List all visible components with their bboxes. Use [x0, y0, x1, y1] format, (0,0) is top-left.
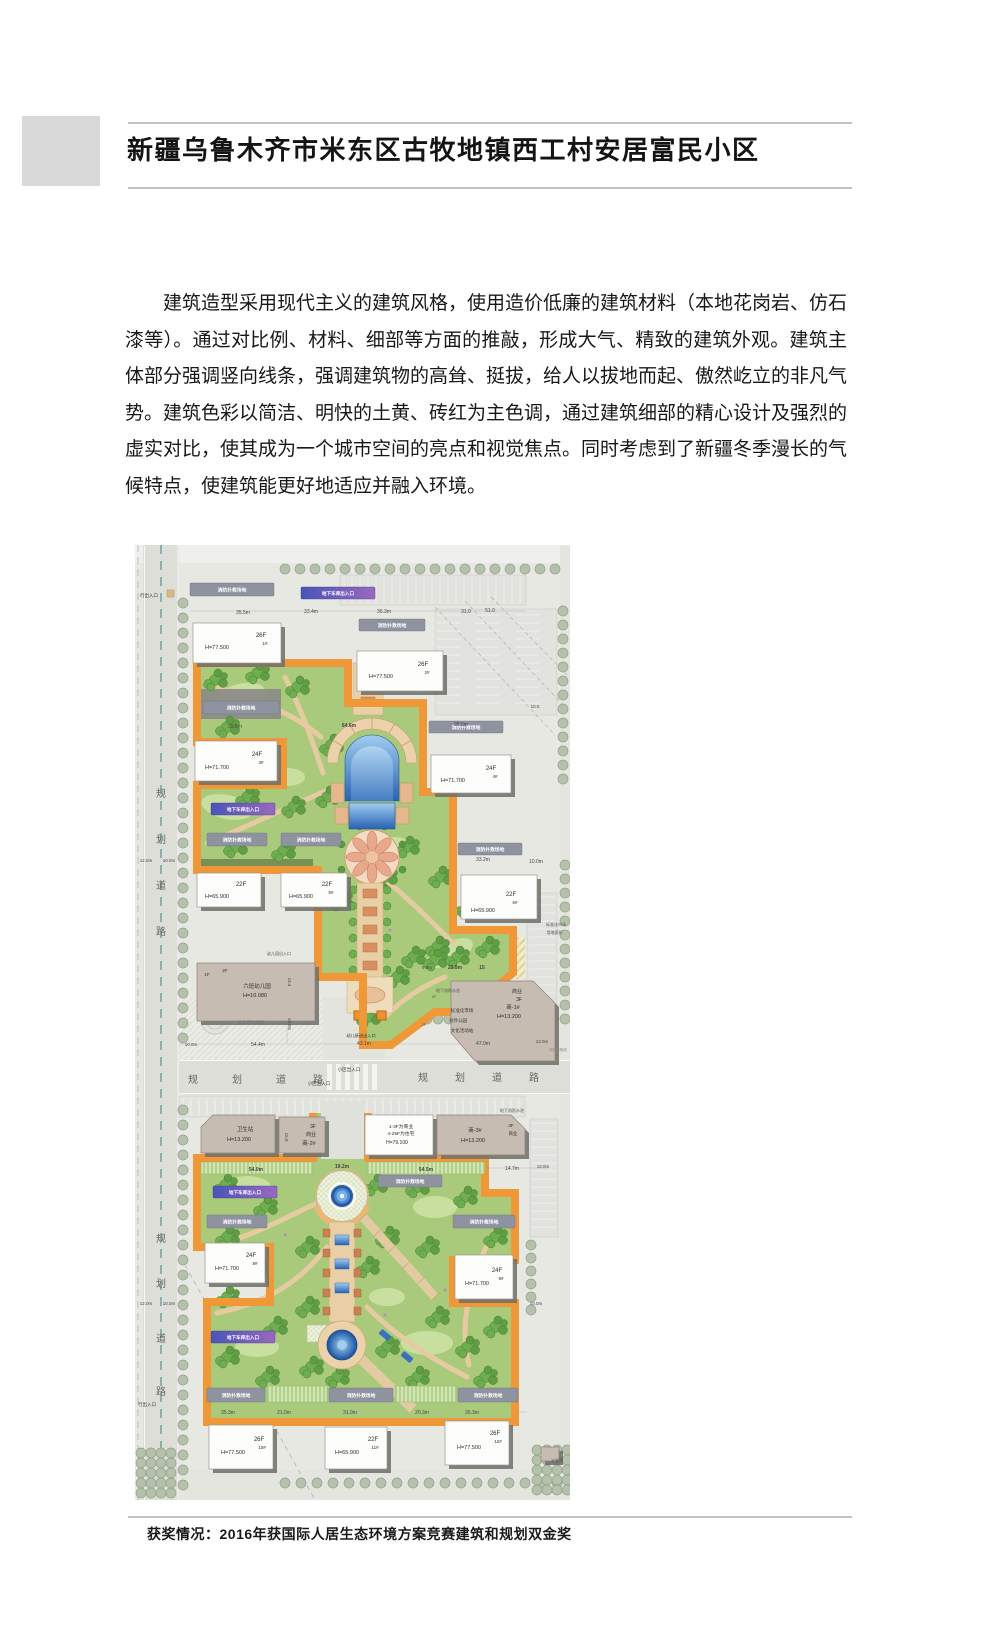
building-label: 8# [252, 1261, 258, 1266]
building-label: 24F [492, 1268, 503, 1274]
fire-pad-label: 消防扑救场地 [222, 1392, 251, 1399]
garage-entrance-label: 地下车库出入口 [227, 806, 260, 813]
plan-label: 12.0m [140, 1301, 153, 1306]
building-label: 26F [256, 633, 267, 639]
plan-label: 20.3m [415, 1410, 429, 1416]
building-label: 24F [486, 766, 497, 772]
building-label: H=65.900 [205, 894, 229, 900]
plan-label: 21.0m [277, 1410, 291, 1416]
garage-entrance-label: 地下车库出入口 [229, 1189, 262, 1196]
plan-label: 水箱间 [551, 1457, 563, 1463]
building-label: 商-3# [468, 1126, 482, 1134]
caption-rule [128, 1516, 852, 1518]
parking-lot [530, 1119, 558, 1237]
plan-label: 31.0 [461, 609, 471, 615]
plan-building [193, 623, 281, 663]
site-plan-figure: H=77.50026F1#H=77.50026F2#H=71.70024F3#H… [135, 545, 570, 1500]
building-label: H=77.500 [205, 645, 229, 651]
plan-label: 22.5m [448, 965, 463, 971]
plan-label: 规 [418, 1071, 428, 1084]
building-label: 卫生站 [237, 1125, 254, 1133]
plan-label: 14.7m [505, 1166, 519, 1172]
building-label: 26F [490, 1431, 501, 1437]
plan-label: 35.5m [236, 610, 250, 616]
plan-label: 标准化市场 [451, 1007, 474, 1014]
building-label: 5# [328, 890, 334, 895]
building-label: 22F [368, 1437, 379, 1443]
building-label: 1F [204, 972, 210, 977]
building-label: H=77.500 [221, 1450, 245, 1456]
plan-label: 路 [156, 1385, 166, 1398]
building-label: H=71.700 [465, 1281, 489, 1287]
building-label: H=71.700 [441, 778, 465, 784]
plan-label: 2F [422, 1022, 427, 1027]
plan-label: 51.0 [485, 608, 495, 614]
plan-label: 35.5m [228, 724, 242, 730]
building-label: H=77.500 [369, 674, 393, 680]
plan-label: 用地面积: [546, 929, 563, 935]
green-strip [267, 1386, 327, 1402]
building-label: 24F [252, 752, 263, 758]
building-label: H=79.100 [386, 1140, 408, 1146]
fire-pad-label: 消防扑救场地 [218, 586, 247, 593]
building-label: 22F [506, 892, 517, 898]
plan-building [357, 651, 443, 691]
building-label: H=65.900 [289, 894, 313, 900]
plan-building [197, 963, 315, 1021]
fire-pad-label: 消防扑救场地 [396, 1178, 425, 1185]
building-label: 4-25F为住宅 [388, 1130, 415, 1137]
road-west [143, 545, 179, 1500]
plan-label: 19.4 [287, 978, 292, 987]
plan-label: 地下消防水池 [500, 1107, 524, 1113]
plan-label: 文化活动站 [451, 1027, 474, 1034]
building-label: 商-1# [506, 1003, 520, 1011]
plan-label: 43.1m [357, 1041, 371, 1047]
plan-label: 规 [188, 1073, 198, 1086]
building-label: H=65.900 [471, 908, 495, 914]
plan-label: 35.3m [221, 1410, 235, 1416]
fire-pad-label: 消防扑救场地 [378, 622, 407, 629]
plan-label: 行出入口 [140, 592, 158, 599]
plan-building [197, 873, 261, 907]
title-rule-bottom [128, 187, 852, 189]
building-label: 22F [236, 882, 247, 888]
building-label: 商业 [306, 1131, 316, 1138]
fire-pad-label: 消防扑救场地 [474, 1392, 503, 1399]
building-label: H=65.900 [335, 1450, 359, 1456]
plan-label: 规划建筑线 [549, 1047, 567, 1052]
plan-label: 54.4m [251, 1042, 265, 1048]
document-page: 新疆乌鲁木齐市米东区古牧地镇西工村安居富民小区 建筑造型采用现代主义的建筑风格，… [0, 0, 1000, 1630]
building-label: H=77.500 [457, 1445, 481, 1451]
building-label: 22F [322, 882, 333, 888]
building-label: H=13.200 [461, 1138, 485, 1144]
award-caption: 获奖情况：2016年获国际人居生态环境方案竞赛建筑和规划双金奖 [147, 1524, 572, 1544]
plan-label: 12.0m [140, 858, 153, 863]
plan-label: 54.0m [249, 1167, 264, 1173]
fire-pad-label: 消防扑救场地 [227, 704, 256, 711]
plan-label: 19.2m [335, 1164, 350, 1170]
plan-label: 道 [276, 1073, 286, 1086]
building-label: 12# [494, 1439, 502, 1444]
plan-label: 10.0m [529, 859, 543, 865]
plan-label: 划 [156, 1277, 166, 1290]
building-label: 24F [246, 1253, 257, 1259]
plan-label: 幼儿接送出入口 [346, 1032, 375, 1039]
building-label: 2# [424, 670, 430, 675]
building-label: 26F [418, 662, 429, 668]
plan-label: 道 [156, 1332, 166, 1345]
plan-label: 道 [492, 1071, 502, 1084]
plan-label: 47.0m [476, 1041, 490, 1047]
plan-label: 规 [156, 787, 166, 800]
fire-pad-label: 消防扑救场地 [223, 1218, 252, 1225]
building-label: 6# [512, 900, 518, 905]
building-label: 1-3F为商业 [389, 1123, 413, 1130]
body-paragraph: 建筑造型采用现代主义的建筑风格，使用造价低廉的建筑材料（本地花岗岩、仿石漆等）。… [125, 286, 847, 506]
fire-pad-label: 消防扑救场地 [223, 836, 252, 843]
plan-label: 54.5m [419, 1167, 434, 1173]
plan-label: 2F [432, 994, 437, 999]
plan-label: 10.0m [530, 1301, 543, 1306]
plan-label: 道 [156, 879, 166, 892]
plan-building [281, 873, 347, 907]
plan-label: 31.0m [343, 1410, 357, 1416]
garage-entrance-label: 地下车库出入口 [227, 1334, 260, 1341]
plan-label: 行出入口 [138, 1401, 156, 1408]
building-label: 2F [222, 968, 228, 973]
building-label: H=71.700 [205, 765, 229, 771]
plan-label: 地下消防水池 [436, 987, 460, 993]
plan-label: 幼儿活动场地 [238, 1019, 265, 1026]
margin-gray-block [22, 116, 100, 186]
plan-label: 12.0m [537, 1164, 550, 1169]
fire-pad-label: 消防扑救场地 [476, 846, 505, 853]
fire-pad-label: 消防扑救场地 [347, 1392, 376, 1399]
building-label: H=13.200 [497, 1014, 521, 1020]
plan-building [195, 741, 277, 781]
building-label: 9# [498, 1276, 504, 1281]
plan-label: 小区出入口 [308, 1080, 331, 1087]
plan-label: 划 [232, 1073, 242, 1086]
building-label: 10# [258, 1445, 266, 1450]
building-label: 26F [254, 1437, 265, 1443]
plan-label: 36.3m [377, 609, 391, 615]
plan-label: 10.0m [163, 1301, 176, 1306]
building-label: 商业 [512, 988, 522, 995]
building-label: 3F [508, 1123, 514, 1128]
plan-label: 33.4m [304, 609, 318, 615]
plan-label: 35.3m [465, 1410, 479, 1416]
building-label: 1# [262, 641, 268, 646]
parking-lot [435, 609, 557, 715]
building-label: 六班幼儿园 [243, 982, 271, 990]
plan-label: 小区出入口 [338, 1066, 361, 1073]
building-label: 11# [371, 1445, 379, 1450]
plan-label: 15 [479, 965, 485, 971]
plan-label: 15.0 [284, 1133, 289, 1142]
plan-label: 路 [156, 925, 166, 938]
fire-pad-label: 消防扑救场地 [297, 836, 326, 843]
building-label: 3F [310, 1124, 316, 1130]
building-label: H=13.200 [227, 1137, 251, 1143]
plan-label: 路 [529, 1071, 539, 1084]
plan-label: 规 [156, 1232, 166, 1245]
entrance-gate-column [377, 1011, 386, 1020]
building-label: 4# [492, 774, 498, 779]
plan-building [431, 755, 511, 793]
building-label: H=71.700 [215, 1266, 239, 1272]
plan-label: 33.2m [476, 857, 490, 863]
green-strip [395, 1386, 456, 1402]
plan-label: 划 [156, 833, 166, 846]
building-label: 3# [258, 760, 264, 765]
page-title: 新疆乌鲁木齐市米东区古牧地镇西工村安居富民小区 [127, 134, 867, 168]
building-label: 商-2# [302, 1139, 316, 1147]
site-plan: H=77.50026F1#H=77.50026F2#H=71.70024F3#H… [135, 545, 570, 1500]
plan-label: 12.0m [536, 1039, 549, 1044]
plan-label: 9.0m [422, 965, 432, 970]
plan-building [455, 1255, 513, 1299]
plan-label: 10.0m [163, 858, 176, 863]
title-rule-top [128, 122, 852, 124]
building-label: 3F [516, 997, 522, 1003]
plan-label: 对外公园 [449, 1017, 467, 1024]
building-label: H=10.080 [243, 993, 267, 999]
plan-label: 19.0m [287, 1018, 292, 1031]
plan-building [201, 1115, 275, 1153]
fire-pad-label: 消防扑救场地 [470, 1218, 499, 1225]
building-label: 商业 [509, 1130, 518, 1137]
plan-label: 10.0m [185, 1042, 198, 1047]
plan-label: 幼儿园出入口 [267, 950, 291, 956]
plan-label: 划 [455, 1071, 465, 1084]
plan-label: 标准化市场 [546, 921, 566, 927]
plan-label: 35.5m [454, 722, 468, 728]
plan-label: 64.6m [342, 723, 357, 729]
garage-entrance-label: 地下车库出入口 [322, 590, 355, 597]
plan-label: 10.0 [531, 704, 540, 709]
